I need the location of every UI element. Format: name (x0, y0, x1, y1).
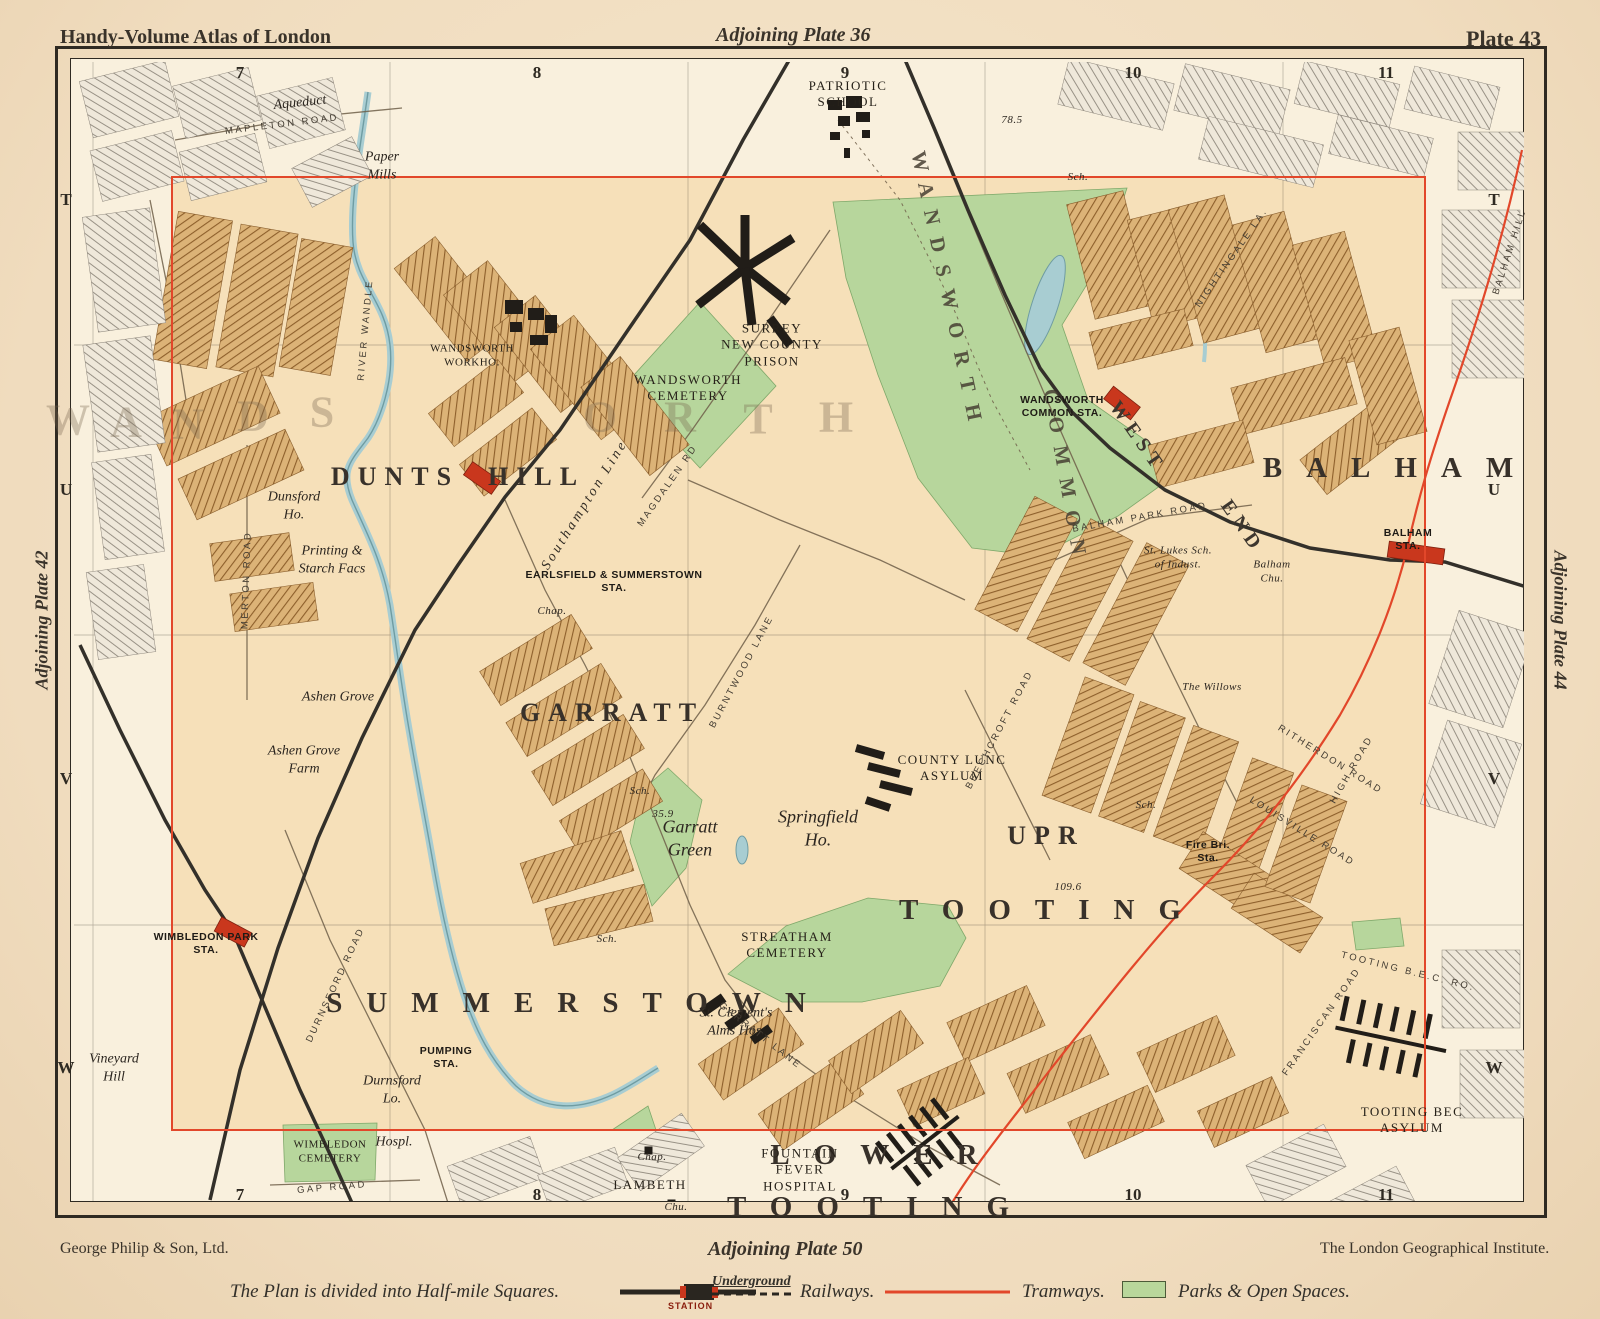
legend-station-label: STATION (668, 1301, 713, 1311)
grid-letter: T (60, 190, 71, 210)
grid-number: 9 (841, 63, 850, 83)
adjoining-plate-left: Adjoining Plate 42 (32, 550, 53, 689)
institute: The London Geographical Institute. (1320, 1240, 1549, 1258)
grid-number: 10 (1125, 1185, 1142, 1205)
church-icon (668, 1200, 675, 1207)
grid-letter: V (60, 769, 72, 789)
patriotic-school-icon (828, 96, 870, 158)
grid-number: 7 (236, 1185, 245, 1205)
adjoining-plate-bottom: Adjoining Plate 50 (708, 1238, 862, 1261)
grid-number: 8 (533, 1185, 542, 1205)
grid-letter: T (1488, 190, 1499, 210)
publisher: George Philip & Son, Ltd. (60, 1240, 229, 1258)
adjoining-plate-right: Adjoining Plate 44 (1550, 550, 1571, 689)
map-canvas (0, 0, 1600, 1319)
atlas-page: { "header": {"left": "Handy-Volume Atlas… (0, 0, 1600, 1319)
grid-letter: W (58, 1058, 75, 1078)
grid-number: 11 (1378, 1185, 1394, 1205)
legend-parks-label: Parks & Open Spaces. (1178, 1281, 1350, 1303)
legend-underground-label: Underground (712, 1274, 791, 1290)
adjoining-plate-top: Adjoining Plate 36 (716, 24, 870, 47)
plate-number: Plate 43 (1466, 26, 1541, 52)
grid-number: 10 (1125, 63, 1142, 83)
grid-number: 9 (841, 1185, 850, 1205)
atlas-title: Handy-Volume Atlas of London (60, 26, 331, 49)
grid-letter: U (60, 480, 72, 500)
legend-intro: The Plan is divided into Half-mile Squar… (230, 1281, 559, 1303)
grid-letter: V (1488, 769, 1500, 789)
grid-number: 7 (236, 63, 245, 83)
grid-number: 8 (533, 63, 542, 83)
legend-parks-swatch (1122, 1281, 1166, 1298)
chapel-icon (645, 1147, 652, 1154)
grid-letter: W (1486, 1058, 1503, 1078)
grid-letter: U (1488, 480, 1500, 500)
grid-number: 11 (1378, 63, 1394, 83)
legend-railways-label: Railways. (800, 1281, 874, 1303)
legend-tramways-label: Tramways. (1022, 1281, 1105, 1303)
